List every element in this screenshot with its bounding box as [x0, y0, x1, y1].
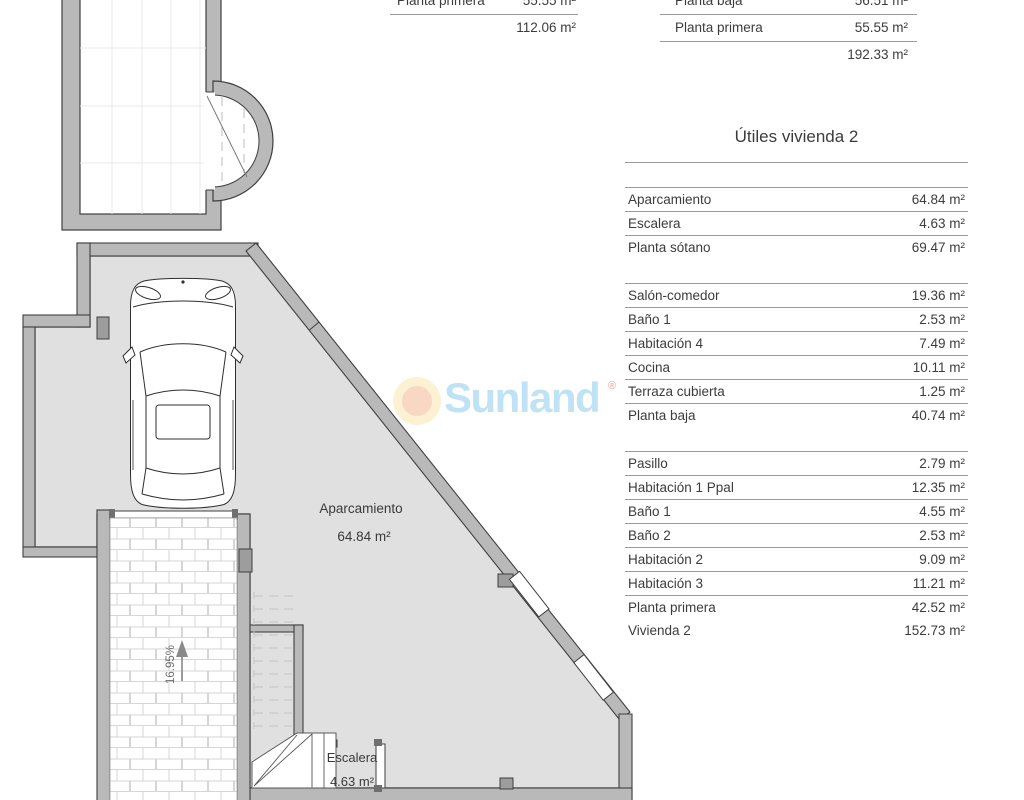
stair-door — [374, 739, 385, 792]
row-label: Salón-comedor — [628, 284, 720, 307]
row-value: 64.84 m² — [912, 188, 965, 211]
table-row: Habitación 29.09 m² — [625, 547, 968, 571]
row-label: Planta primera — [628, 596, 716, 619]
table-row: Terraza cubierta1.25 m² — [625, 379, 968, 403]
car-sunroof — [156, 405, 210, 439]
row-value: 2.53 m² — [919, 524, 965, 547]
table-total-row: 112.06 m² — [390, 15, 578, 41]
row-label: Baño 1 — [628, 308, 671, 331]
table-row: Habitación 47.49 m² — [625, 331, 968, 355]
row-label: Cocina — [628, 356, 670, 379]
parking-label: Aparcamiento — [319, 501, 402, 516]
utiles-table: Útiles vivienda 2 Aparcamiento64.84 m²Es… — [625, 123, 968, 642]
total-value: 112.06 m² — [516, 15, 576, 41]
pillar — [97, 317, 109, 339]
row-label: Escalera — [628, 212, 681, 235]
row-label: Planta baja — [628, 404, 696, 427]
car-top-view — [123, 278, 243, 508]
stairs-area-label: 4.63 m² — [330, 774, 375, 789]
row-label: Planta primera — [675, 15, 763, 41]
ramp-slope-label: 16.95% — [165, 645, 177, 684]
wall-stair-side — [294, 625, 303, 742]
table-row: Aparcamiento64.84 m² — [625, 187, 968, 211]
summary-table-vivienda-1: Planta primera55.55 m²112.06 m² — [390, 0, 578, 41]
table-row: Cocina10.11 m² — [625, 355, 968, 379]
upper-room — [62, 0, 273, 230]
row-label: Habitación 2 — [628, 548, 703, 571]
table-row: Habitación 1 Ppal12.35 m² — [625, 475, 968, 499]
row-label: Aparcamiento — [628, 188, 711, 211]
row-value: 55.55 m² — [855, 15, 908, 41]
table-section: Salón-comedor19.36 m²Baño 12.53 m²Habita… — [625, 283, 968, 427]
table-row: Baño 12.53 m² — [625, 307, 968, 331]
wall-right — [619, 714, 632, 800]
row-value: 4.55 m² — [919, 500, 965, 523]
room-interior — [80, 0, 206, 214]
row-value: 19.36 m² — [912, 284, 965, 307]
table-row: Habitación 311.21 m² — [625, 571, 968, 595]
row-value: 2.53 m² — [919, 308, 965, 331]
parking-area-label: 64.84 m² — [337, 529, 391, 544]
row-label: Baño 1 — [628, 500, 671, 523]
row-label: Terraza cubierta — [628, 380, 725, 403]
table-row: Planta sótano69.47 m² — [625, 235, 968, 259]
summary-table-construidas: Planta baja56.51 m²Planta primera55.55 m… — [660, 0, 917, 68]
wall-bottom — [250, 788, 632, 800]
table-row: Vivienda 2152.73 m² — [625, 619, 968, 642]
table-row: Salón-comedor19.36 m² — [625, 283, 968, 307]
table-row: Planta primera42.52 m² — [625, 595, 968, 619]
floor-plan-page: 16.95% — [0, 0, 1024, 800]
row-label: Vivienda 2 — [628, 619, 691, 642]
row-value: 12.35 m² — [912, 476, 965, 499]
row-value: 1.25 m² — [919, 380, 965, 403]
row-label: Baño 2 — [628, 524, 671, 547]
row-label: Habitación 4 — [628, 332, 703, 355]
row-value: 7.49 m² — [919, 332, 965, 355]
wall-ramp-left — [97, 510, 110, 800]
table-title: Útiles vivienda 2 — [625, 123, 968, 163]
pillar — [239, 549, 252, 572]
room-bay-passage — [204, 92, 215, 190]
table-row: Escalera4.63 m² — [625, 211, 968, 235]
row-value: 152.73 m² — [904, 619, 965, 642]
table-row: Baño 22.53 m² — [625, 523, 968, 547]
row-label: Planta sótano — [628, 236, 711, 259]
row-label: Habitación 3 — [628, 572, 703, 595]
row-value: 4.63 m² — [919, 212, 965, 235]
table-section: Pasillo2.79 m²Habitación 1 Ppal12.35 m²B… — [625, 451, 968, 642]
row-value: 2.79 m² — [919, 452, 965, 475]
table-section: Aparcamiento64.84 m²Escalera4.63 m²Plant… — [625, 187, 968, 259]
utiles-table-body: Aparcamiento64.84 m²Escalera4.63 m²Plant… — [625, 187, 968, 642]
wall-top — [77, 243, 258, 256]
table-row: Planta baja56.51 m² — [660, 0, 917, 15]
table-row: Pasillo2.79 m² — [625, 451, 968, 475]
pillar — [500, 778, 513, 789]
table-total-row: 192.33 m² — [660, 42, 917, 68]
row-value: 56.51 m² — [855, 0, 908, 14]
stairs-label: Escalera — [327, 750, 378, 765]
wall-left-jut — [23, 315, 90, 327]
table-row: Baño 14.55 m² — [625, 499, 968, 523]
row-label: Pasillo — [628, 452, 668, 475]
row-value: 40.74 m² — [912, 404, 965, 427]
table-row: Planta primera55.55 m² — [660, 15, 917, 42]
row-value: 10.11 m² — [913, 356, 965, 379]
wall-left — [77, 243, 90, 327]
table-row: Planta primera55.55 m² — [390, 0, 578, 15]
table-row: Planta baja40.74 m² — [625, 403, 968, 427]
row-value: 9.09 m² — [919, 548, 965, 571]
row-label: Habitación 1 Ppal — [628, 476, 734, 499]
row-label: Planta primera — [397, 0, 485, 14]
wall-left-outer — [23, 327, 35, 547]
row-value: 42.52 m² — [912, 596, 965, 619]
row-value: 55.55 m² — [523, 0, 576, 14]
row-value: 69.47 m² — [912, 236, 965, 259]
total-value: 192.33 m² — [847, 42, 908, 68]
row-label: Planta baja — [675, 0, 743, 14]
row-value: 11.21 m² — [913, 572, 965, 595]
